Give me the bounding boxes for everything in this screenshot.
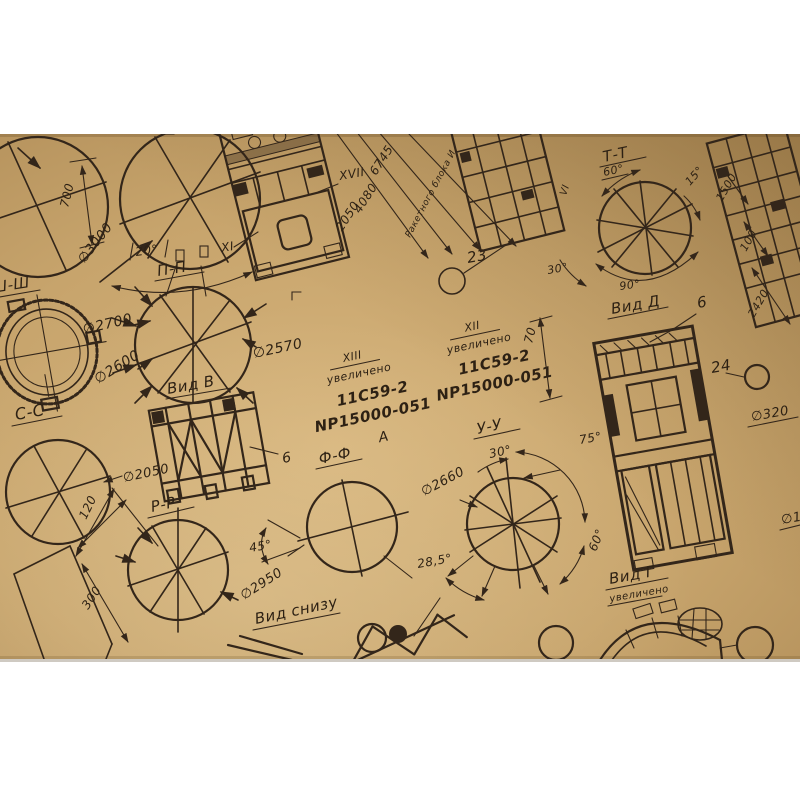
- callout-xi: XI: [219, 239, 235, 255]
- callout-23: 23: [466, 246, 489, 267]
- poster-photo-canvas: 700 ∅3000 20° П-П Ш-Ш: [0, 0, 800, 800]
- blueprint-poster-photo: 700 ∅3000 20° П-П Ш-Ш: [0, 0, 800, 800]
